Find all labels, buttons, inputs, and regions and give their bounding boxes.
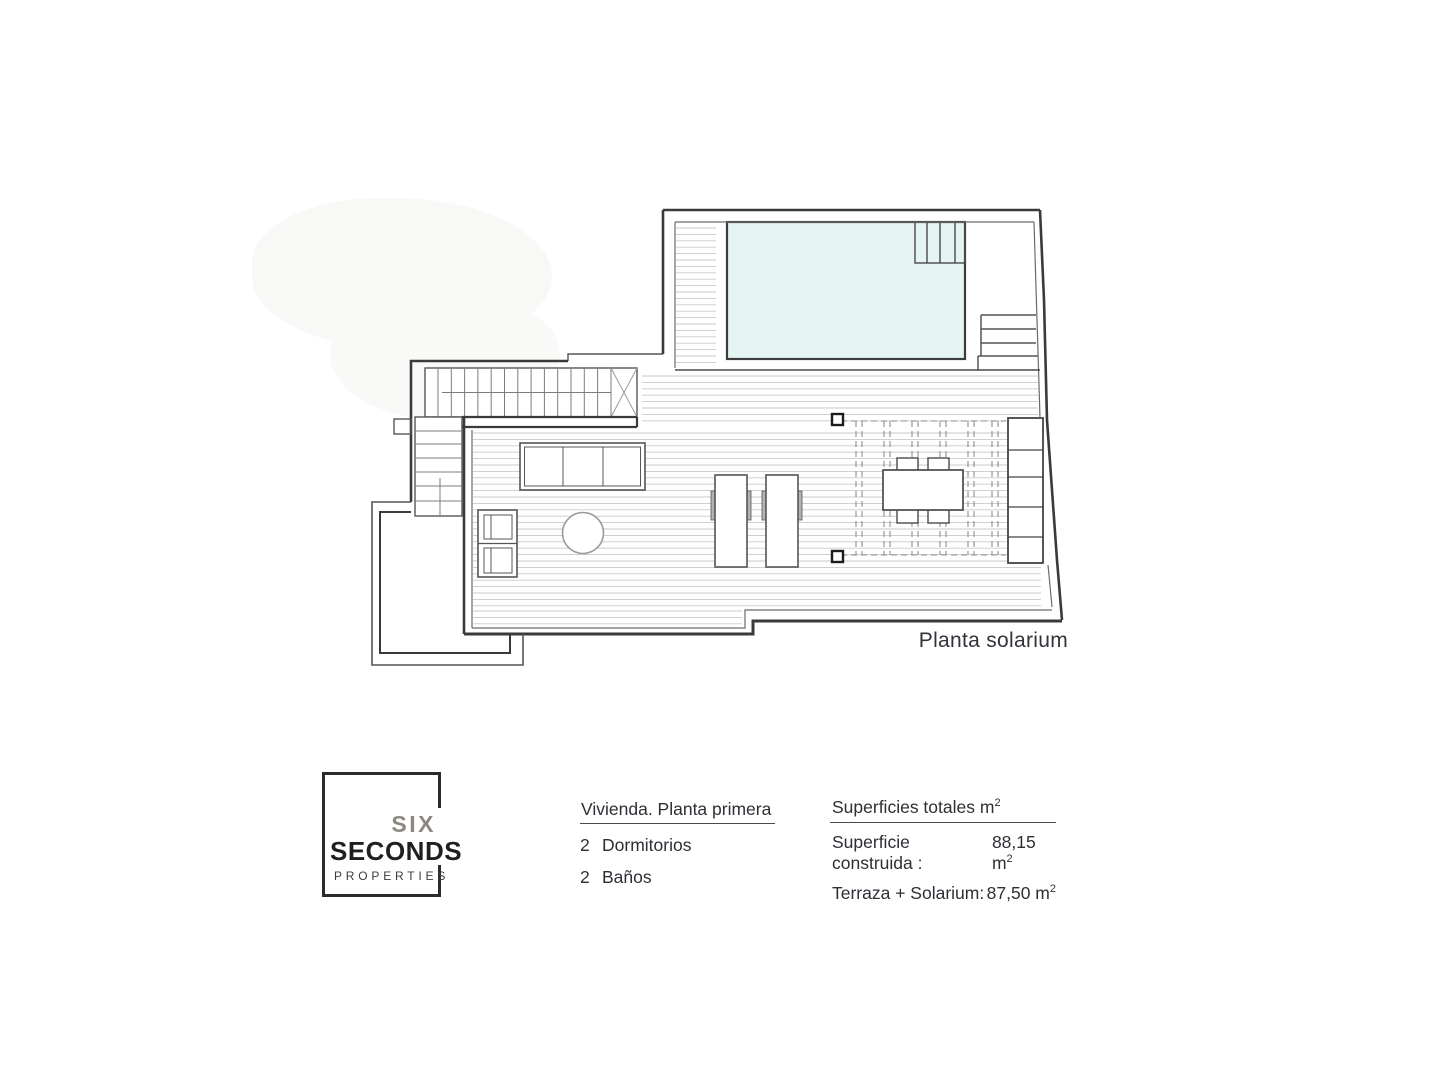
sofa bbox=[520, 443, 645, 490]
area-value: 88,15 m2 bbox=[992, 832, 1056, 874]
floor-plan bbox=[0, 0, 1440, 720]
dining-set bbox=[883, 458, 963, 523]
area-label: Superficie construida : bbox=[832, 832, 992, 874]
pergola-post bbox=[832, 551, 843, 562]
area-row: Terraza + Solarium: 87,50 m2 bbox=[830, 883, 1056, 904]
plan-title: Planta solarium bbox=[908, 629, 1068, 653]
wall-pillar bbox=[394, 419, 411, 434]
round-table bbox=[563, 513, 604, 554]
logo-word-properties: PROPERTIES bbox=[334, 869, 444, 883]
logo-word-six: SIX bbox=[330, 811, 436, 838]
dwelling-details: Vivienda. Planta primera 2Dormitorios 2B… bbox=[580, 799, 780, 888]
dwelling-item: 2Baños bbox=[580, 867, 780, 888]
staircase bbox=[415, 368, 637, 516]
furniture bbox=[478, 414, 1043, 577]
areas-details: Superficies totales m2 Superficie constr… bbox=[830, 797, 1056, 904]
pergola-post bbox=[832, 414, 843, 425]
areas-heading: Superficies totales m2 bbox=[830, 797, 1056, 823]
pool bbox=[727, 222, 965, 359]
pool-steps bbox=[978, 315, 1038, 370]
sun-loungers bbox=[711, 475, 802, 567]
dwelling-item: 2Dormitorios bbox=[580, 835, 780, 856]
bench-strip bbox=[1008, 418, 1043, 563]
area-label: Terraza + Solarium: bbox=[832, 883, 984, 904]
armchair-unit bbox=[478, 510, 517, 577]
area-value: 87,50 m2 bbox=[987, 883, 1056, 904]
area-row: Superficie construida : 88,15 m2 bbox=[830, 832, 1056, 874]
logo-word-seconds: SECONDS bbox=[330, 836, 445, 867]
brochure-page: { "plan": { "caption": "Planta solarium"… bbox=[0, 0, 1440, 1080]
dwelling-heading: Vivienda. Planta primera bbox=[580, 799, 775, 824]
